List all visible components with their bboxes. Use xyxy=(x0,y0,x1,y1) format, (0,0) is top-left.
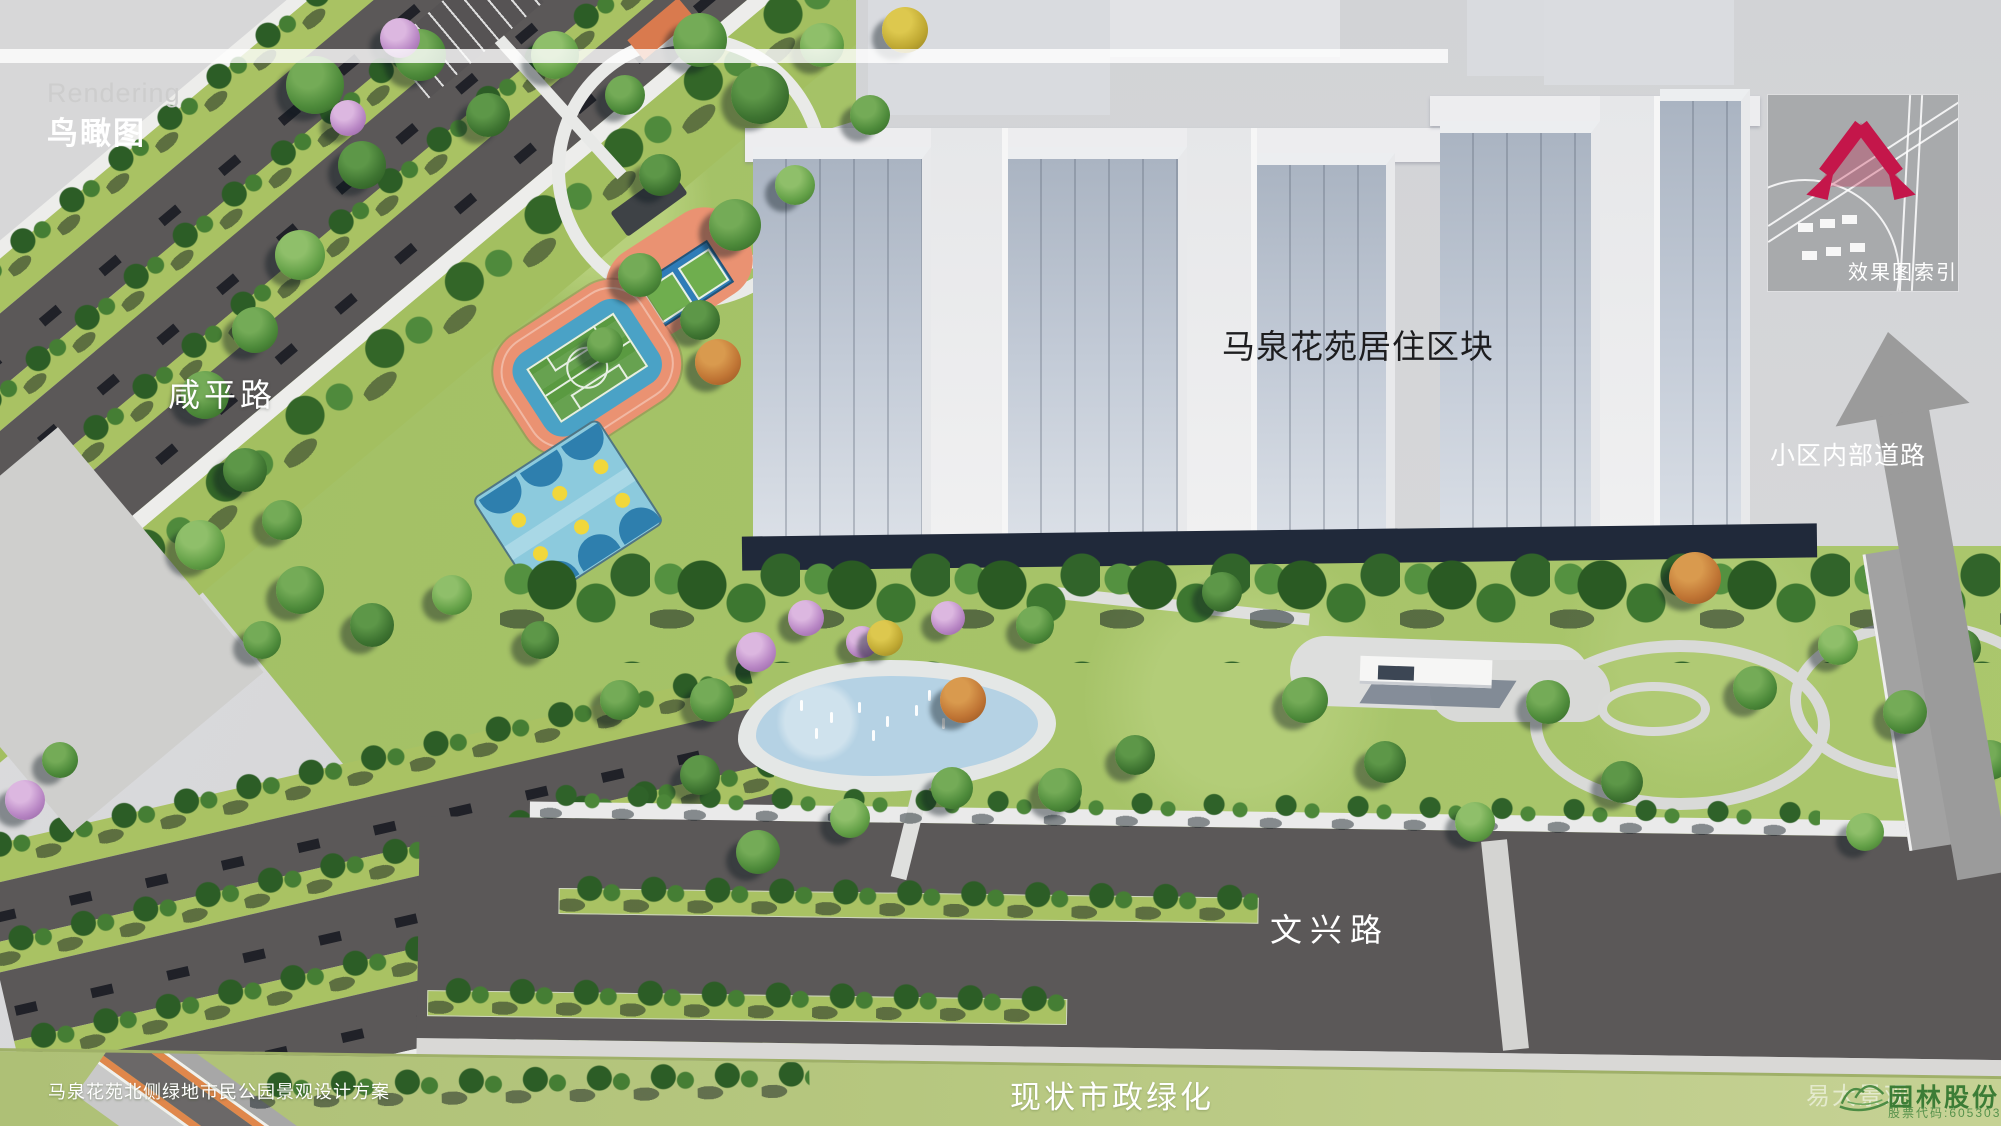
tree xyxy=(1526,680,1570,724)
center-dot xyxy=(508,510,529,531)
page-title: 鸟瞰图 xyxy=(47,108,146,153)
tree xyxy=(695,339,741,385)
tree xyxy=(731,66,789,124)
residential-tower xyxy=(1600,96,1660,551)
rendering-slide: Rendering 鸟瞰图 咸平路 马泉花苑居住区块 小区内部道路 文兴路 现状… xyxy=(0,0,2001,1126)
residential-tower xyxy=(1008,147,1187,542)
label-xianping-road: 咸平路 xyxy=(168,370,276,416)
tree xyxy=(587,327,623,363)
tree xyxy=(1282,677,1328,723)
view-direction-icon xyxy=(1786,112,1936,232)
tree xyxy=(42,742,78,778)
building-back-row xyxy=(1544,0,1734,85)
tree xyxy=(830,798,870,838)
tree xyxy=(709,199,761,251)
tree xyxy=(338,141,386,189)
fountain-jet xyxy=(942,718,945,729)
tree xyxy=(262,500,302,540)
residential-tower xyxy=(931,128,1008,542)
tree xyxy=(1733,666,1777,710)
center-dot xyxy=(549,483,570,504)
tree xyxy=(736,830,780,874)
label-municipal-greening: 现状市政绿化 xyxy=(1010,1072,1214,1117)
company-logo-icon xyxy=(1836,1072,1894,1116)
map-building xyxy=(1826,247,1841,256)
tree xyxy=(1016,606,1054,644)
center-dot xyxy=(590,456,611,477)
tree xyxy=(1669,552,1721,604)
tree xyxy=(1115,735,1155,775)
tree xyxy=(639,154,681,196)
tree xyxy=(1818,625,1858,665)
tree xyxy=(275,230,325,280)
tree xyxy=(432,575,472,615)
residential-tower xyxy=(1660,89,1750,551)
fountain-jet xyxy=(830,712,833,723)
tree xyxy=(882,7,928,53)
index-map-caption: 效果图索引 xyxy=(1848,256,1958,285)
fountain-jet xyxy=(886,716,889,727)
forest-band xyxy=(500,545,2001,663)
tree xyxy=(788,600,824,636)
map-building xyxy=(1802,251,1817,260)
fountain-jet xyxy=(800,700,803,711)
project-title: 马泉花苑北侧绿地市民公园景观设计方案 xyxy=(48,1078,390,1104)
tree xyxy=(1202,572,1242,612)
tree xyxy=(1038,768,1082,812)
tree xyxy=(330,100,366,136)
plaza-oval-path xyxy=(1598,682,1710,736)
tree xyxy=(690,678,734,722)
label-wenxing-road: 文兴路 xyxy=(1270,905,1390,951)
tree xyxy=(736,632,776,672)
tree xyxy=(1455,802,1495,842)
tree xyxy=(600,680,640,720)
label-internal-road: 小区内部道路 xyxy=(1770,436,1926,472)
pavilion-opening xyxy=(1378,665,1414,680)
tree xyxy=(521,621,559,659)
tree xyxy=(775,165,815,205)
map-building xyxy=(1850,243,1865,252)
tree xyxy=(680,755,720,795)
label-residential-block: 马泉花苑居住区块 xyxy=(1222,320,1494,368)
tree xyxy=(1364,741,1406,783)
tree xyxy=(1601,761,1643,803)
fountain-jet xyxy=(858,702,861,713)
tree xyxy=(680,300,720,340)
tree xyxy=(466,93,510,137)
tree xyxy=(605,75,645,115)
tree xyxy=(618,253,662,297)
tree xyxy=(243,621,281,659)
tree xyxy=(175,520,225,570)
tree xyxy=(931,767,973,809)
tree xyxy=(1846,813,1884,851)
tree xyxy=(940,677,986,723)
tree xyxy=(931,601,965,635)
fountain-jet xyxy=(872,730,875,741)
tree xyxy=(350,603,394,647)
fountain-jet xyxy=(815,728,818,739)
tree xyxy=(232,307,278,353)
wenxing-road-surface xyxy=(417,816,2001,1060)
tree xyxy=(850,95,890,135)
fountain-jet xyxy=(928,690,931,701)
tree xyxy=(276,566,324,614)
tree xyxy=(223,448,267,492)
median-trees xyxy=(428,975,1067,1026)
tree xyxy=(5,780,45,820)
tree xyxy=(867,620,903,656)
rendering-eyebrow: Rendering xyxy=(47,78,181,109)
building-back-row xyxy=(1467,0,1544,76)
stock-code: 股票代码:605303 xyxy=(1888,1104,2001,1121)
title-underline-band xyxy=(0,49,1448,63)
fountain-jet xyxy=(915,705,918,716)
